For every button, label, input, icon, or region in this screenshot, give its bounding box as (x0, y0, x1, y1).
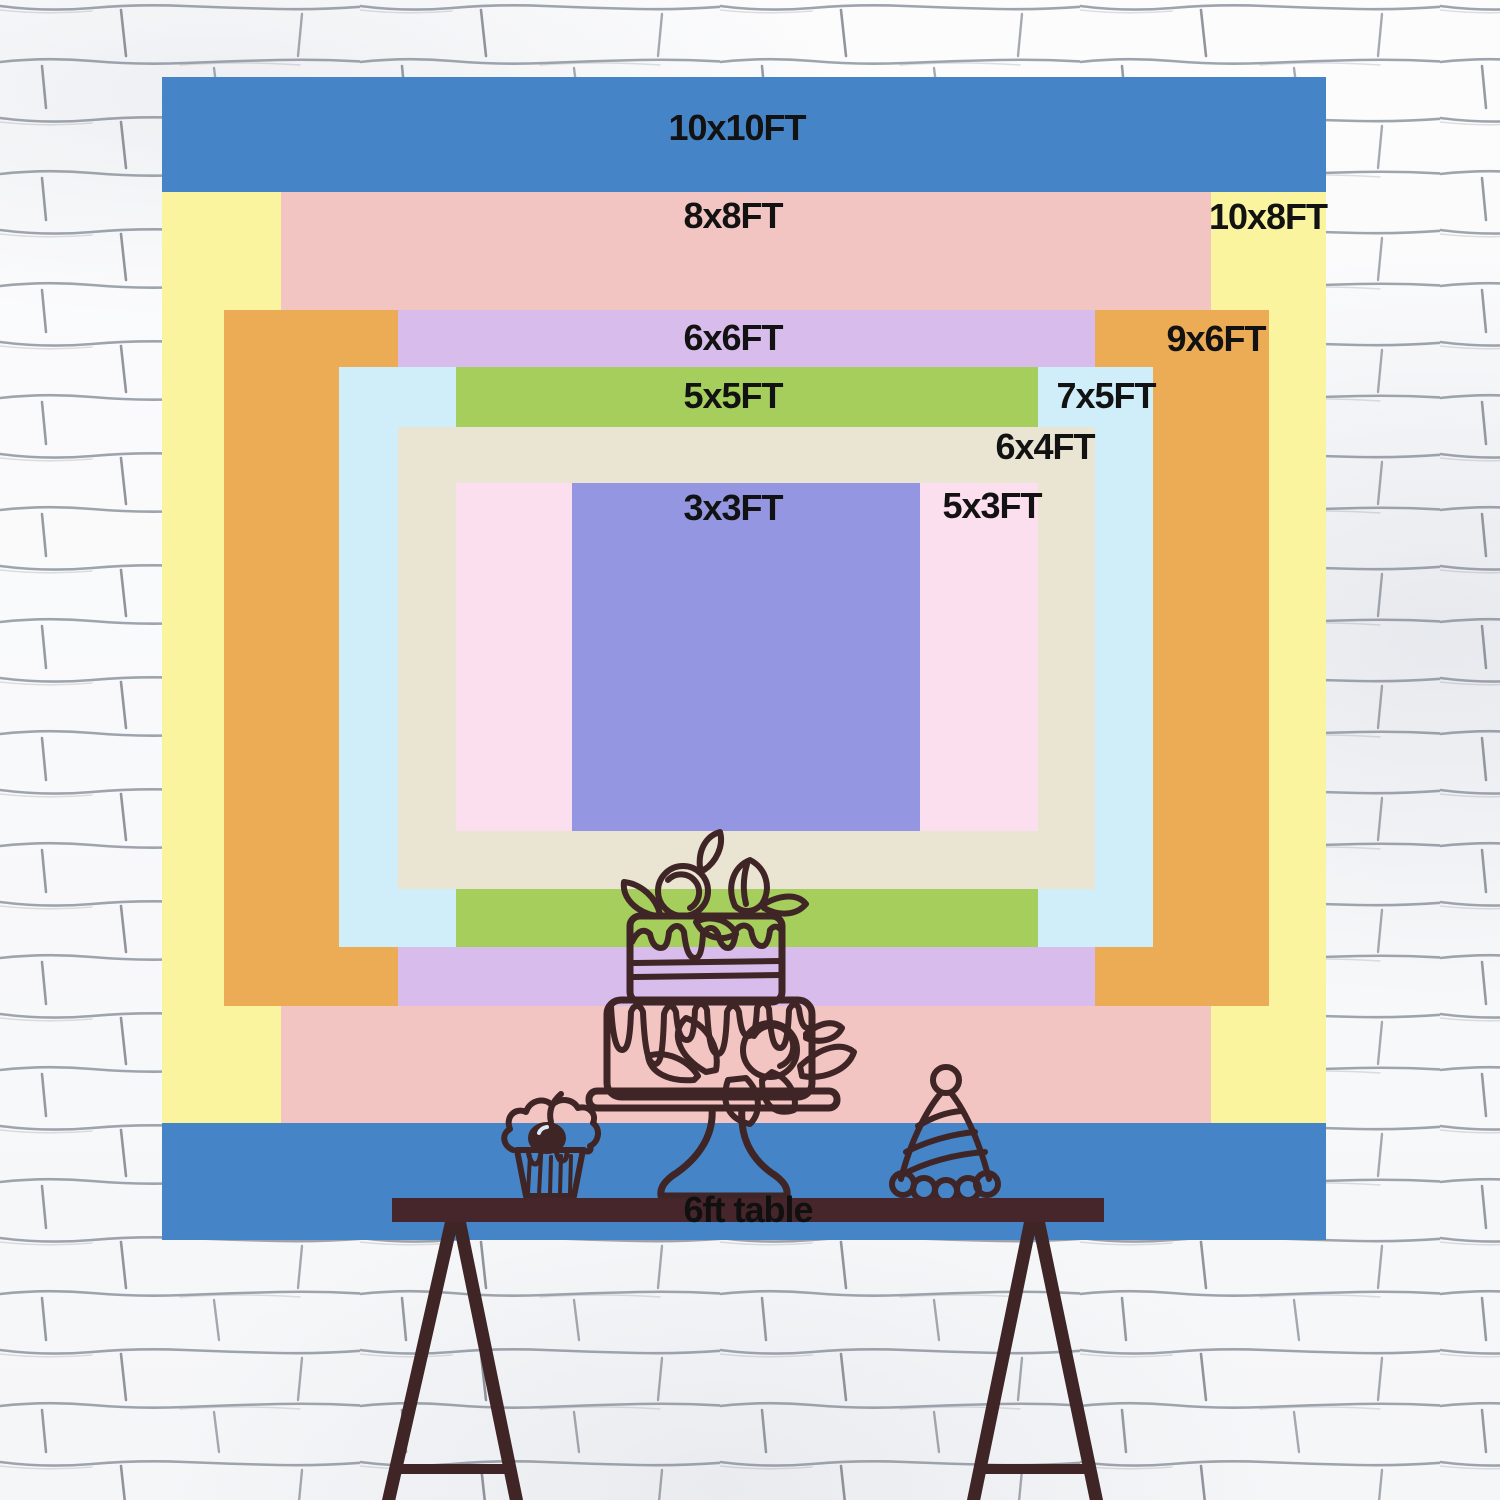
size-label-5x5ft: 5x5FT (683, 378, 782, 414)
size-label-5x3ft: 5x3FT (942, 488, 1041, 524)
backdrop-size-chart: 6ft table 10x10FT 10x8FT 8x8FT 9x6FT 6x6… (0, 0, 1500, 1500)
size-label-6x4ft: 6x4FT (995, 429, 1094, 465)
table-label: 6ft table (683, 1192, 812, 1228)
size-label-7x5ft: 7x5FT (1056, 378, 1155, 414)
size-label-6x6ft: 6x6FT (683, 320, 782, 356)
backdrop-rect-3x3ft (572, 483, 920, 831)
size-label-10x10ft: 10x10FT (668, 110, 805, 146)
size-label-9x6ft: 9x6FT (1166, 321, 1265, 357)
size-label-3x3ft: 3x3FT (683, 490, 782, 526)
size-label-8x8ft: 8x8FT (683, 198, 782, 234)
size-label-10x8ft: 10x8FT (1209, 199, 1327, 235)
